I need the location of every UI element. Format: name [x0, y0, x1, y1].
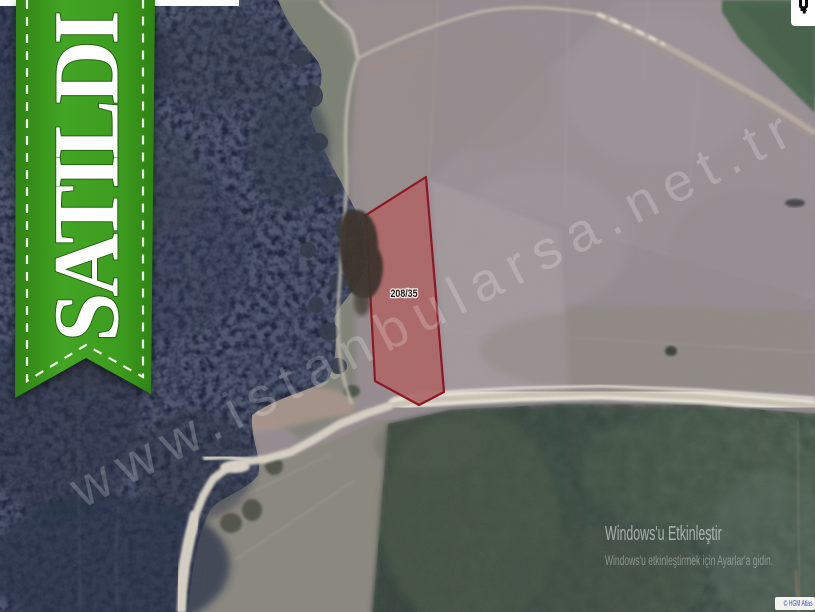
svg-text:SATILDI: SATILDI [34, 13, 138, 342]
